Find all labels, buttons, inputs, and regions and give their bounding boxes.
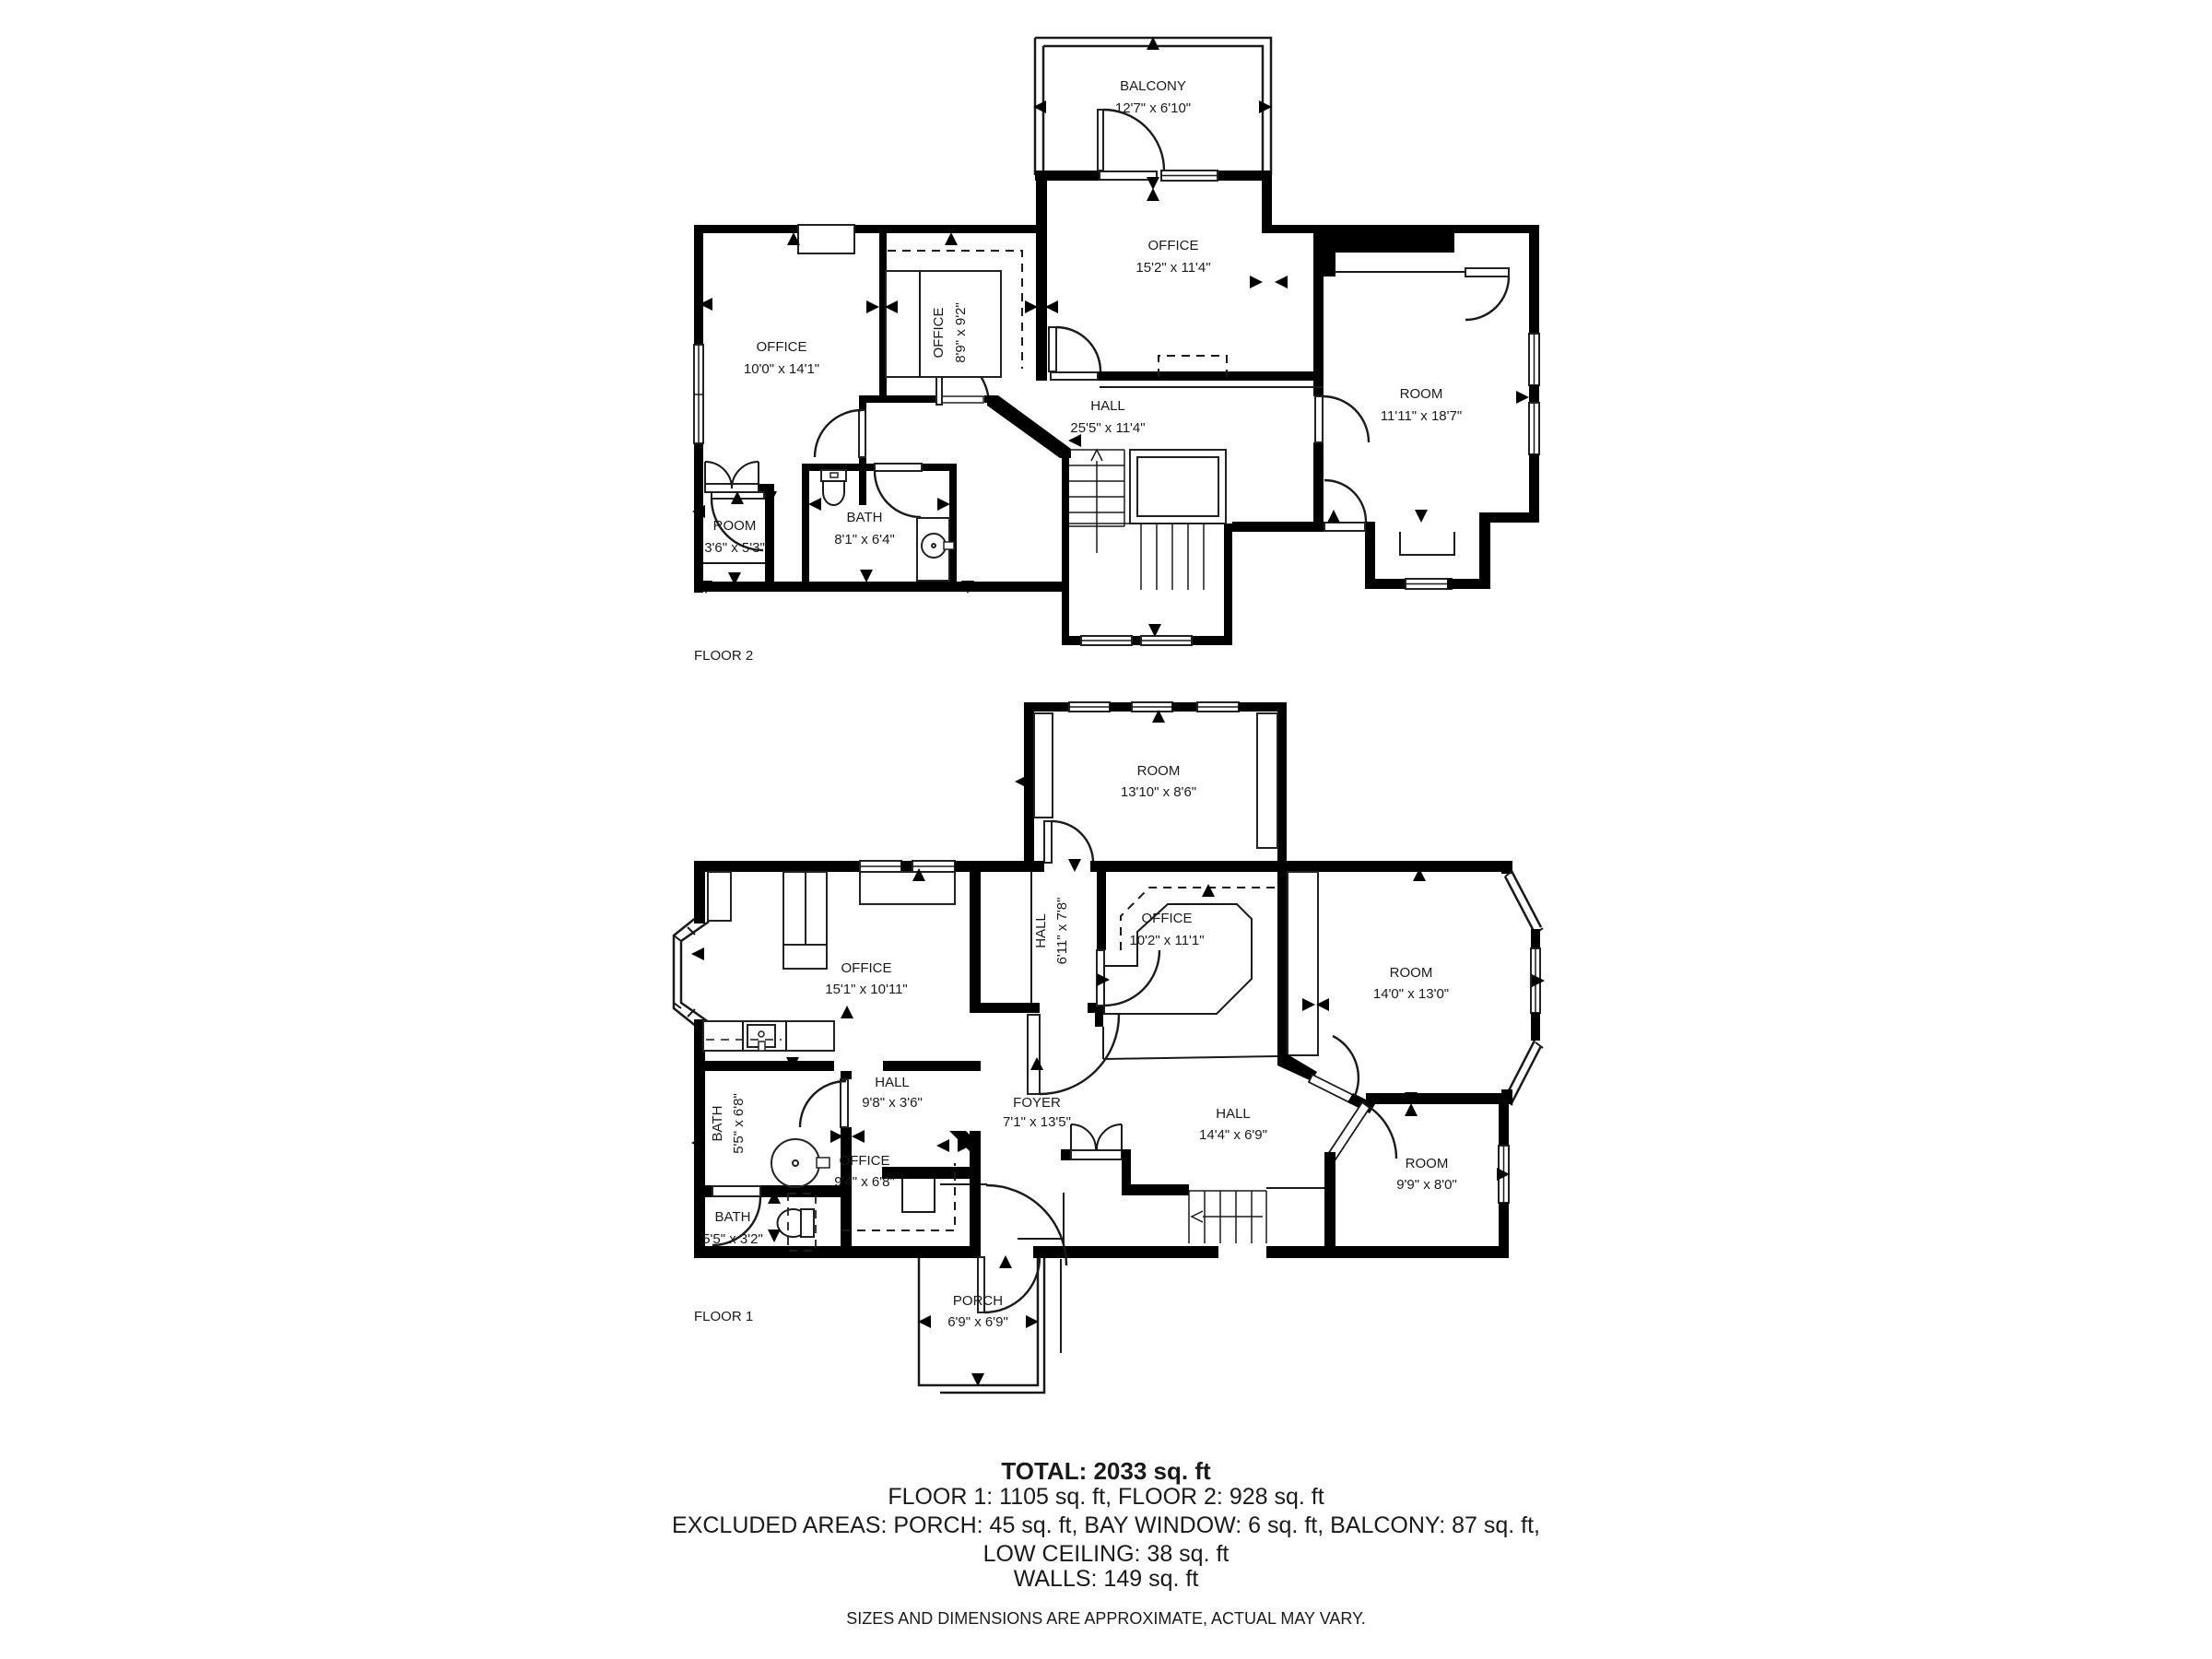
svg-text:9'8" x 3'6": 9'8" x 3'6" (862, 1095, 923, 1111)
svg-text:FLOOR 1: 1105 sq. ft, FLOOR 2:: FLOOR 1: 1105 sq. ft, FLOOR 2: 928 sq. f… (888, 1484, 1324, 1510)
svg-text:13'10" x 8'6": 13'10" x 8'6" (1121, 784, 1196, 800)
svg-text:FOYER: FOYER (1013, 1095, 1061, 1111)
svg-text:OFFICE: OFFICE (841, 960, 892, 976)
svg-text:6'9" x 6'9": 6'9" x 6'9" (947, 1314, 1008, 1330)
svg-text:11'11" x 18'7": 11'11" x 18'7" (1381, 408, 1462, 424)
svg-text:9'4" x 6'8": 9'4" x 6'8" (834, 1174, 895, 1190)
svg-text:12'7" x 6'10": 12'7" x 6'10" (1115, 100, 1191, 116)
svg-text:5'5" x 3'2": 5'5" x 3'2" (702, 1231, 763, 1247)
svg-text:PORCH: PORCH (953, 1293, 1003, 1309)
svg-text:14'4" x 6'9": 14'4" x 6'9" (1199, 1127, 1267, 1143)
svg-text:10'0" x 14'1": 10'0" x 14'1" (744, 361, 819, 377)
svg-text:FLOOR 2: FLOOR 2 (694, 648, 753, 664)
svg-text:14'0" x 13'0": 14'0" x 13'0" (1373, 986, 1449, 1002)
svg-text:3'6" x 5'3": 3'6" x 5'3" (704, 540, 765, 556)
svg-text:15'1" x 10'11": 15'1" x 10'11" (825, 982, 908, 997)
svg-text:5'5" x 6'8": 5'5" x 6'8" (731, 1093, 747, 1154)
svg-text:ROOM: ROOM (1400, 386, 1443, 402)
svg-text:LOW CEILING: 38 sq. ft: LOW CEILING: 38 sq. ft (983, 1541, 1230, 1567)
svg-text:BALCONY: BALCONY (1120, 78, 1186, 94)
svg-text:HALL: HALL (1090, 398, 1125, 414)
svg-text:BATH: BATH (710, 1106, 725, 1142)
svg-text:FLOOR 1: FLOOR 1 (694, 1309, 753, 1324)
svg-text:TOTAL: 2033 sq. ft: TOTAL: 2033 sq. ft (1001, 1457, 1211, 1485)
svg-text:ROOM: ROOM (1390, 965, 1433, 981)
svg-text:ROOM: ROOM (713, 518, 757, 534)
svg-text:OFFICE: OFFICE (1148, 238, 1199, 253)
svg-text:BATH: BATH (847, 510, 883, 525)
svg-text:HALL: HALL (1033, 913, 1049, 948)
svg-text:OFFICE: OFFICE (1142, 911, 1193, 926)
svg-text:25'5" x 11'4": 25'5" x 11'4" (1070, 420, 1145, 436)
svg-text:BATH: BATH (715, 1209, 751, 1225)
svg-text:6'11" x 7'8": 6'11" x 7'8" (1054, 898, 1070, 965)
svg-text:9'9" x 8'0": 9'9" x 8'0" (1396, 1177, 1457, 1193)
svg-text:HALL: HALL (1216, 1106, 1251, 1122)
svg-text:10'2" x 11'1": 10'2" x 11'1" (1129, 933, 1204, 948)
svg-text:HALL: HALL (875, 1075, 910, 1090)
svg-text:15'2" x 11'4": 15'2" x 11'4" (1135, 260, 1210, 276)
svg-text:OFFICE: OFFICE (757, 339, 807, 355)
svg-text:7'1" x 13'5": 7'1" x 13'5" (1003, 1114, 1071, 1130)
svg-text:ROOM: ROOM (1137, 763, 1181, 779)
svg-text:WALLS: 149 sq. ft: WALLS: 149 sq. ft (1014, 1566, 1199, 1592)
svg-text:ROOM: ROOM (1406, 1156, 1449, 1171)
svg-text:OFFICE: OFFICE (931, 308, 947, 359)
svg-text:8'9" x 9'2": 8'9" x 9'2" (953, 302, 969, 363)
svg-text:8'1" x 6'4": 8'1" x 6'4" (834, 532, 895, 547)
svg-text:SIZES AND DIMENSIONS ARE APPRO: SIZES AND DIMENSIONS ARE APPROXIMATE, AC… (846, 1609, 1366, 1628)
svg-text:OFFICE: OFFICE (840, 1153, 890, 1169)
svg-text:EXCLUDED AREAS: PORCH: 45 sq.: EXCLUDED AREAS: PORCH: 45 sq. ft, BAY WI… (672, 1512, 1540, 1538)
